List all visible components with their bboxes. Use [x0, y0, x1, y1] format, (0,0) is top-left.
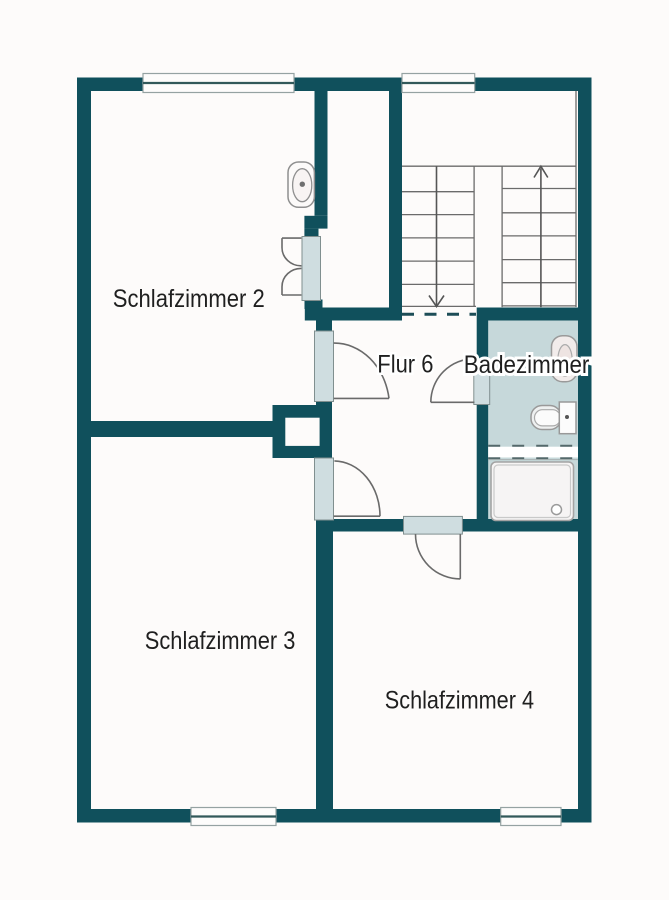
- svg-text:Schlafzimmer 2: Schlafzimmer 2: [113, 285, 265, 313]
- svg-text:Schlafzimmer 3: Schlafzimmer 3: [145, 627, 296, 655]
- svg-text:Flur 6: Flur 6: [377, 350, 433, 378]
- svg-text:Badezimmer: Badezimmer: [464, 351, 590, 379]
- svg-text:Schlafzimmer 4: Schlafzimmer 4: [385, 686, 534, 714]
